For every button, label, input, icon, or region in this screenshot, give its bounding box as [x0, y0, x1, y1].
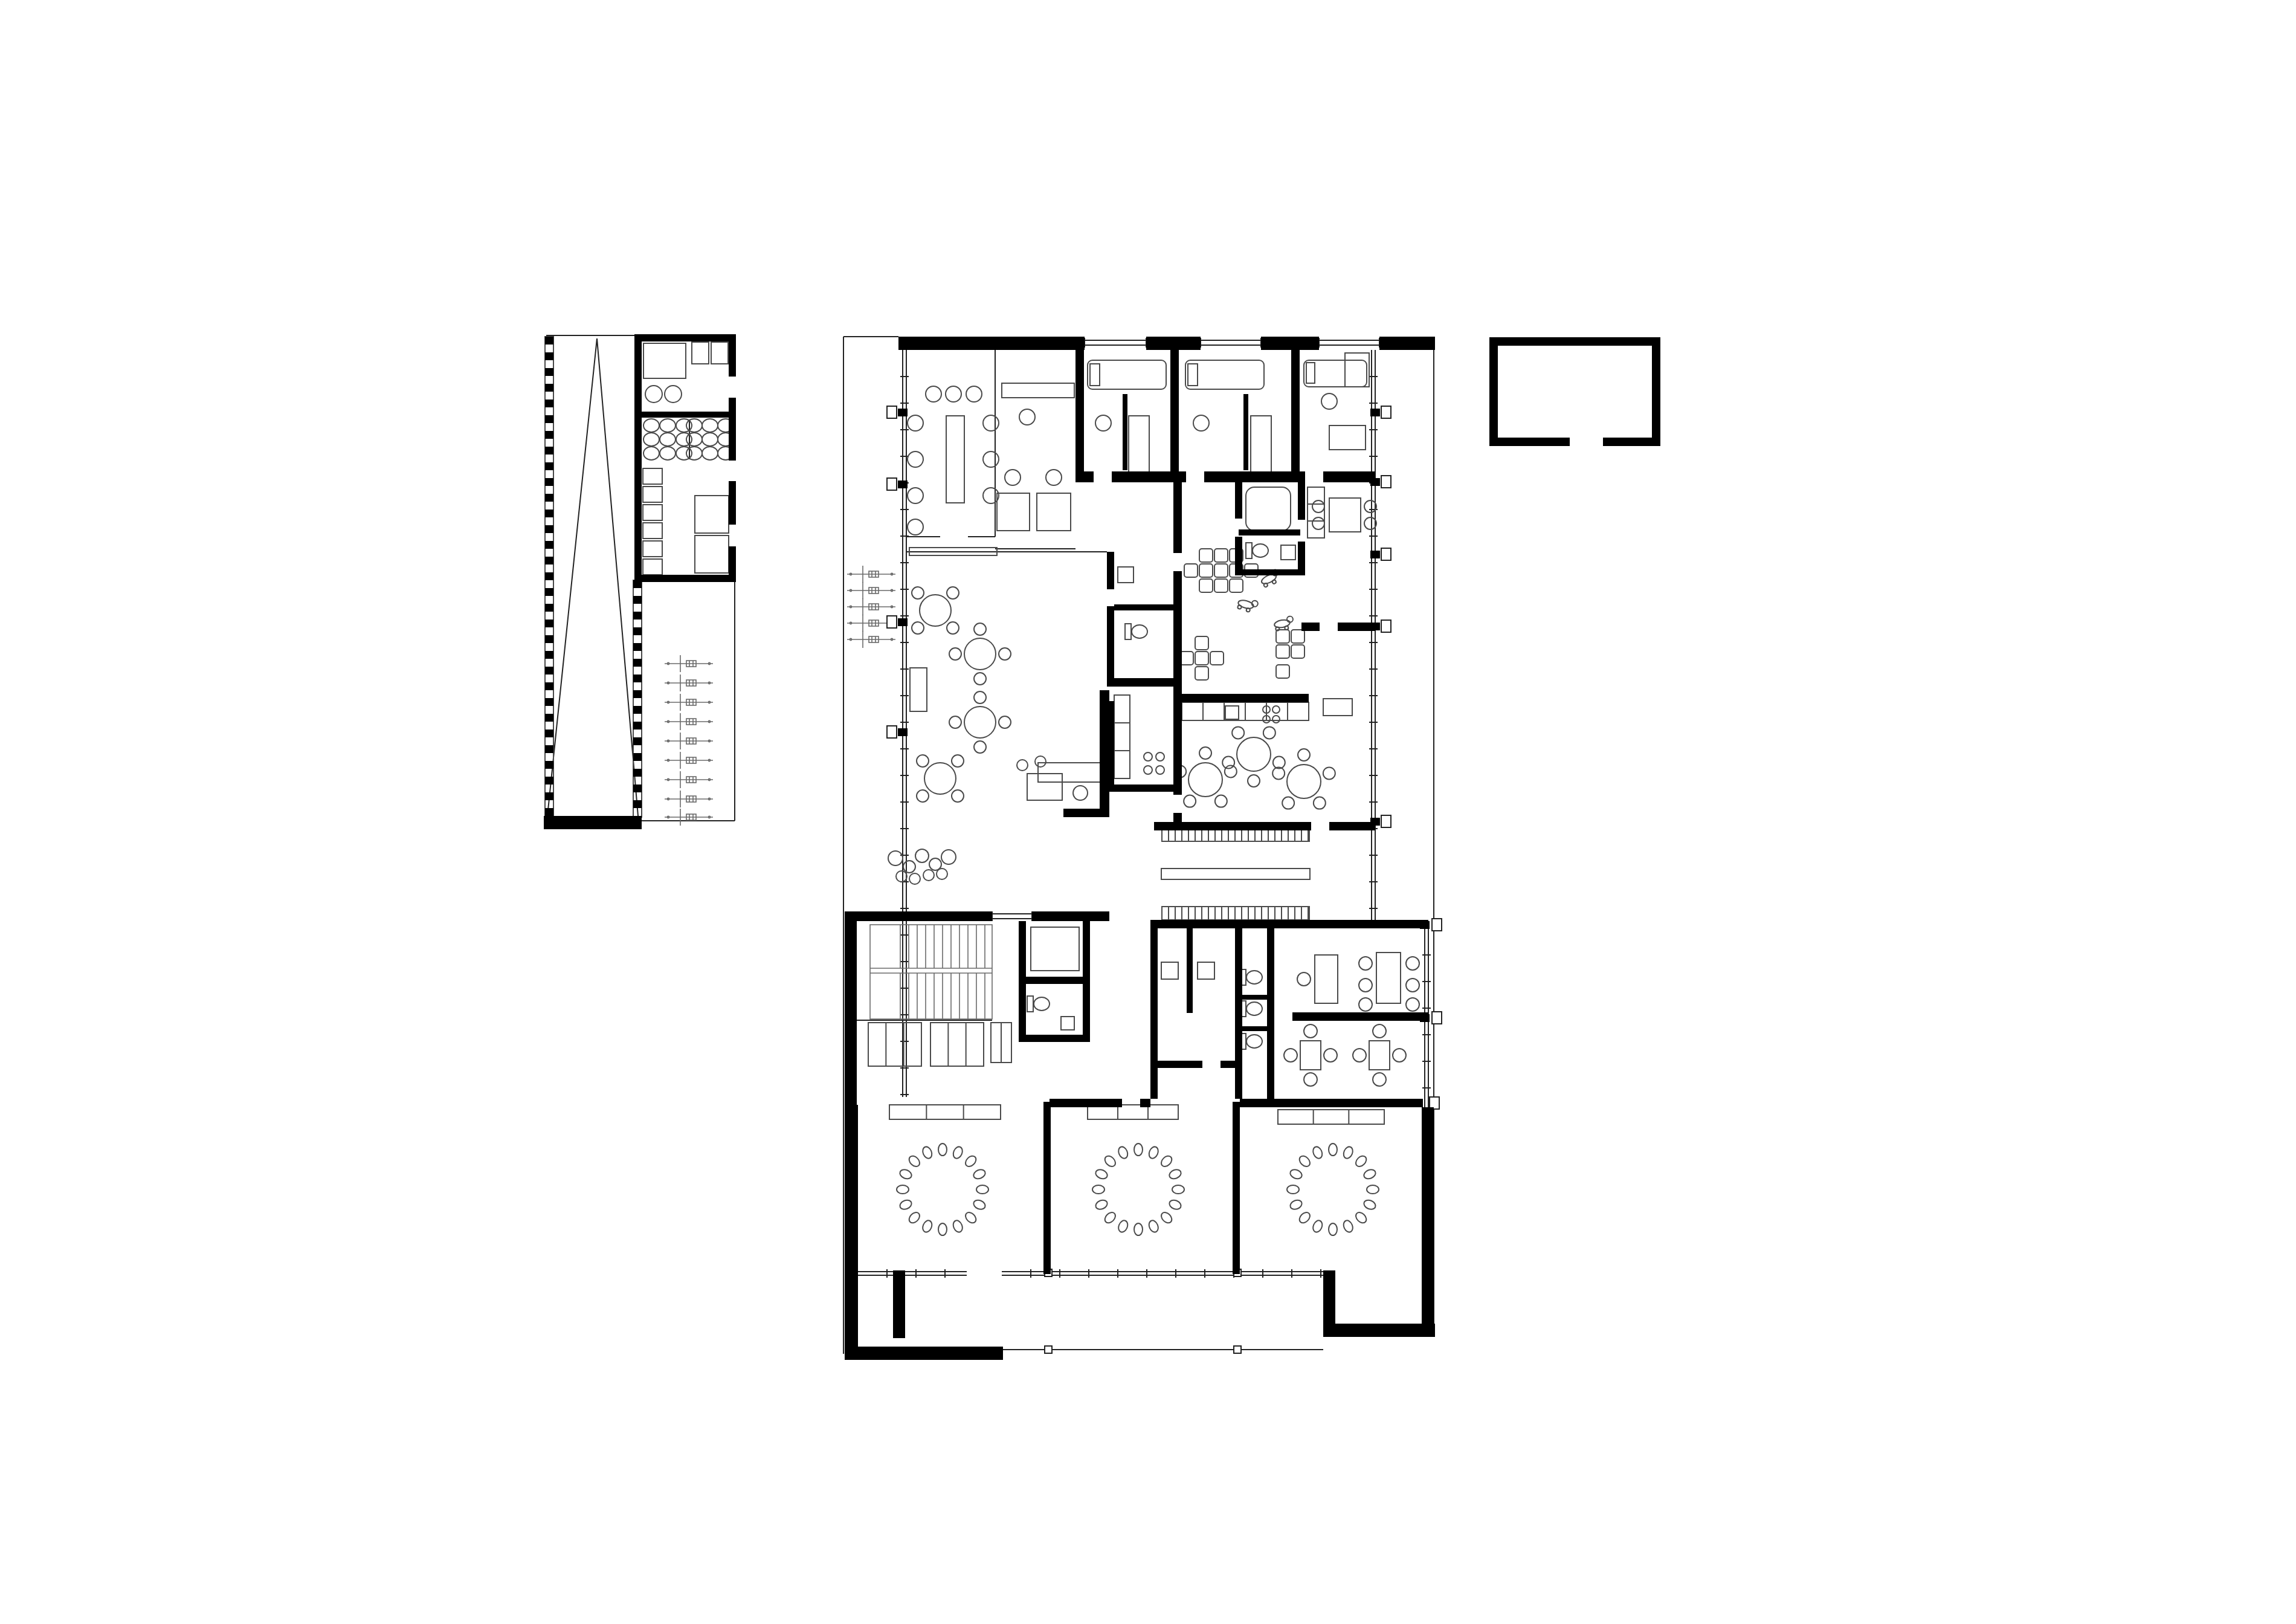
hatch-walls-layer	[545, 337, 642, 817]
walls-layer	[544, 334, 1660, 1360]
floor-plan-canvas	[0, 0, 2296, 1624]
floor-plan-page	[0, 0, 2296, 1624]
staircase	[870, 925, 992, 1019]
